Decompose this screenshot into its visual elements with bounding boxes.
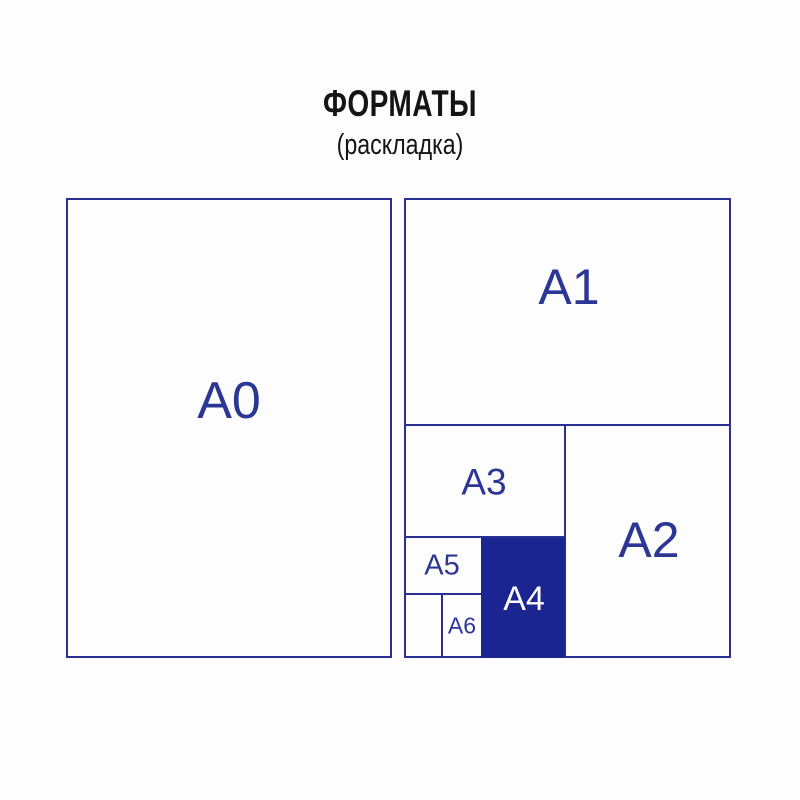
format-label-a5: A5 <box>424 552 459 581</box>
format-label-a3: A3 <box>461 464 506 501</box>
format-label-a0: A0 <box>197 375 261 427</box>
format-label-a2: A2 <box>618 515 679 565</box>
format-label-a1: A1 <box>538 262 599 312</box>
paper-formats-diagram: ФОРМАТЫ (раскладка) A0 A1 A2 A3 A4 A5 A6 <box>0 0 800 800</box>
page-subtitle: (раскладка) <box>80 131 720 160</box>
format-label-a6: A6 <box>448 615 476 638</box>
format-label-a4: A4 <box>503 582 545 616</box>
page-title: ФОРМАТЫ <box>96 85 704 122</box>
divider-a5-bottom <box>404 593 482 595</box>
divider-a1-bottom <box>404 424 731 426</box>
divider-a6-left <box>441 595 443 658</box>
